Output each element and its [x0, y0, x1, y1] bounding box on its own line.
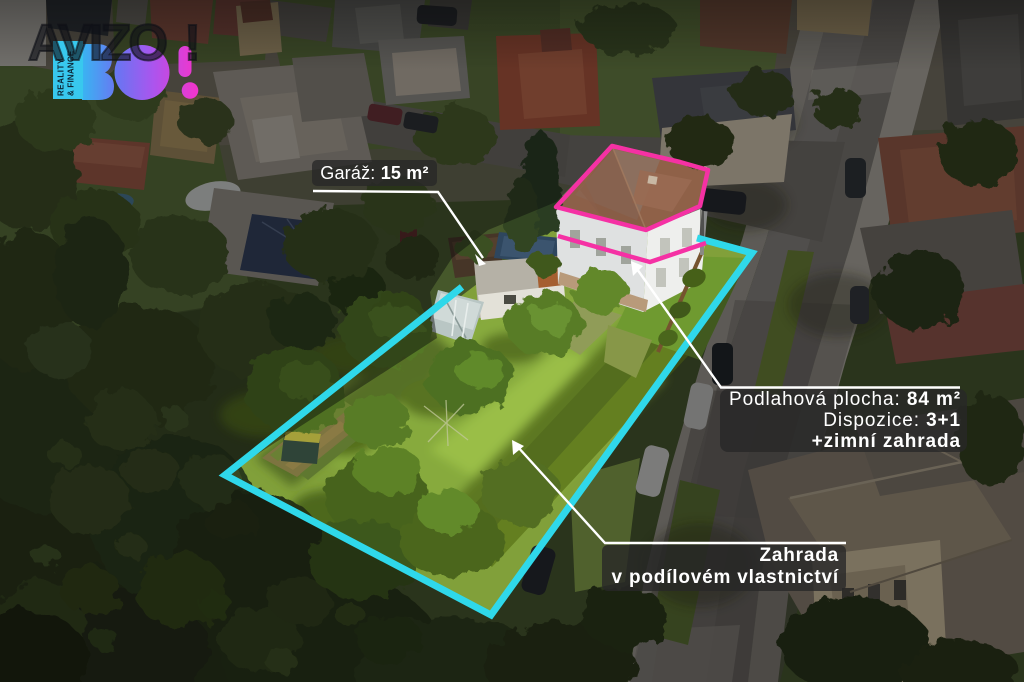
svg-text:AVIZO: AVIZO — [28, 14, 166, 71]
svg-text:!: ! — [184, 14, 201, 71]
